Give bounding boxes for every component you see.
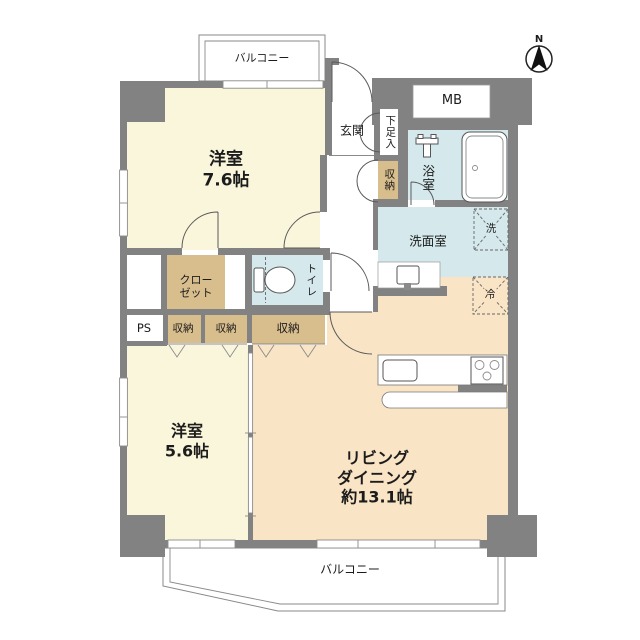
floor-plan-drawing xyxy=(0,0,640,640)
closet-label: クロー ゼット xyxy=(180,274,213,301)
fridge-space-label: 冷 xyxy=(484,289,497,302)
washer-space-label: 洗 xyxy=(485,223,498,236)
entrance-label: 玄関 xyxy=(340,124,364,139)
bathtub-icon xyxy=(462,132,507,202)
washbasin-icon xyxy=(378,262,440,290)
washroom-label: 洗面室 xyxy=(409,233,447,248)
north-arrow-icon xyxy=(526,45,552,72)
toilet-door xyxy=(331,253,369,291)
bedroom1-label: 洋室 7.6帖 xyxy=(202,149,249,190)
entrance-storage-label: 収納 xyxy=(384,169,395,192)
north-label: N xyxy=(535,34,543,46)
sink-icon xyxy=(383,360,417,381)
balcony-top-label: バルコニー xyxy=(235,51,290,64)
entrance-storage-doors xyxy=(357,160,378,202)
shoe-cupboard-label: 下足入 xyxy=(385,115,396,150)
toilet-label: トイレ xyxy=(306,263,317,298)
bedroom2-label: 洋室 5.6帖 xyxy=(165,421,209,460)
kitchen-counter xyxy=(378,355,507,408)
bathroom-label: 浴室 xyxy=(421,165,434,192)
living-dining-label: リビング ダイニング 約13.1帖 xyxy=(337,449,417,508)
stove-icon xyxy=(471,357,503,384)
entrance-door xyxy=(332,62,372,102)
storage3-label: 収納 xyxy=(277,321,300,335)
storage1-label: 収納 xyxy=(173,323,194,336)
balcony-bottom-label: バルコニー xyxy=(320,563,380,578)
balcony-bottom-outline xyxy=(163,548,505,611)
floor-plan: バルコニー N MB 玄関 下足入 収納 洋室 7.6帖 浴室 洗面室 洗 冷 … xyxy=(0,0,640,640)
storage2-label: 収納 xyxy=(216,323,237,336)
pipe-space-label: PS xyxy=(137,321,151,335)
meter-box-label: MB xyxy=(442,93,462,109)
counter-front xyxy=(382,392,507,408)
